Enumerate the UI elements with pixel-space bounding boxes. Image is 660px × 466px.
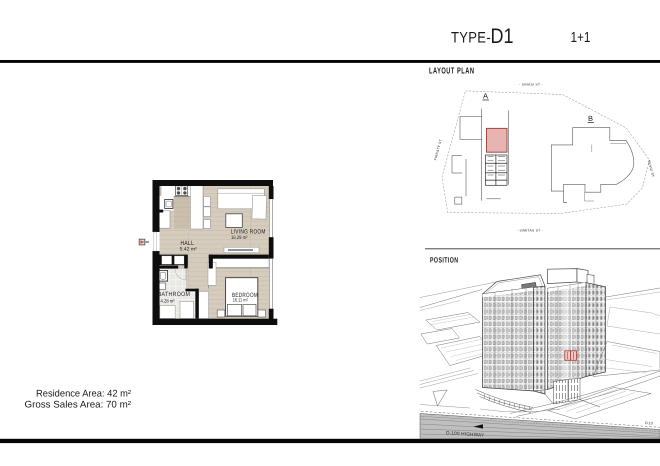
svg-text:Residence Area: 42 m²: Residence Area: 42 m² [36, 389, 132, 400]
svg-text:- SIMITAS ST -: - SIMITAS ST - [517, 229, 543, 233]
svg-text:HALL: HALL [181, 240, 195, 247]
svg-text:1+1: 1+1 [571, 30, 591, 46]
svg-text:D.10: D.10 [645, 421, 653, 426]
svg-text:4.28 m²: 4.28 m² [161, 298, 176, 304]
svg-text:LAYOUT PLAN: LAYOUT PLAN [429, 66, 475, 76]
svg-text:B: B [588, 114, 593, 123]
svg-text:16.11 m²: 16.11 m² [233, 298, 249, 303]
svg-text:Gross Sales Area: 70 m²: Gross Sales Area: 70 m² [25, 399, 132, 410]
svg-text:D1: D1 [491, 25, 514, 48]
svg-text:5.42 m²: 5.42 m² [180, 246, 197, 252]
svg-text:16.29 m²: 16.29 m² [231, 235, 248, 241]
svg-text:- SINASI ST -: - SINASI ST - [519, 83, 543, 87]
svg-text:A: A [483, 92, 488, 101]
svg-text:POSITION: POSITION [430, 256, 459, 265]
svg-text:TYPE-: TYPE- [451, 30, 491, 47]
svg-text:LIVING ROOM: LIVING ROOM [231, 229, 266, 236]
svg-text:BATHROOM: BATHROOM [158, 291, 191, 298]
